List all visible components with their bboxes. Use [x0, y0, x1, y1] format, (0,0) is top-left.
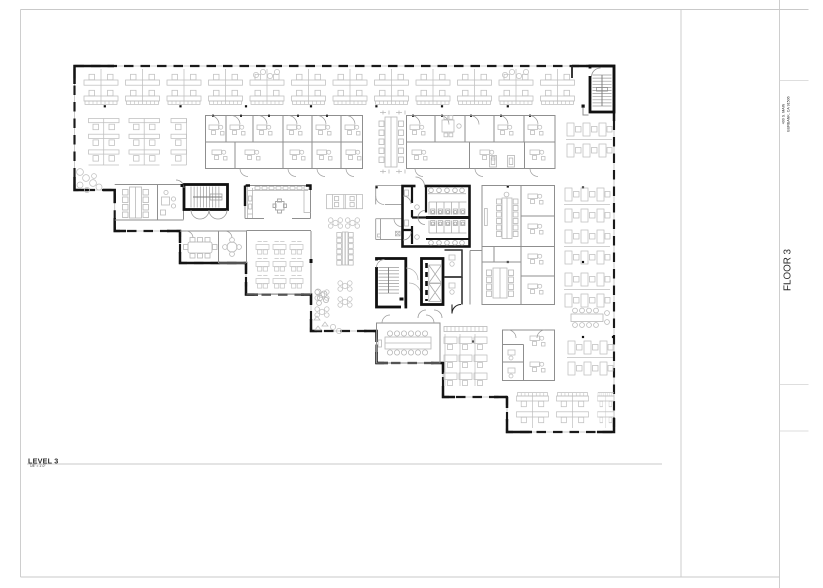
svg-text:1/8" = 1'-0": 1/8" = 1'-0" — [30, 464, 46, 468]
svg-text:BURBANK, CA 91506: BURBANK, CA 91506 — [787, 96, 791, 131]
svg-text:400 S. MAIN: 400 S. MAIN — [782, 103, 786, 124]
svg-text:FLOOR 3: FLOOR 3 — [783, 248, 794, 290]
